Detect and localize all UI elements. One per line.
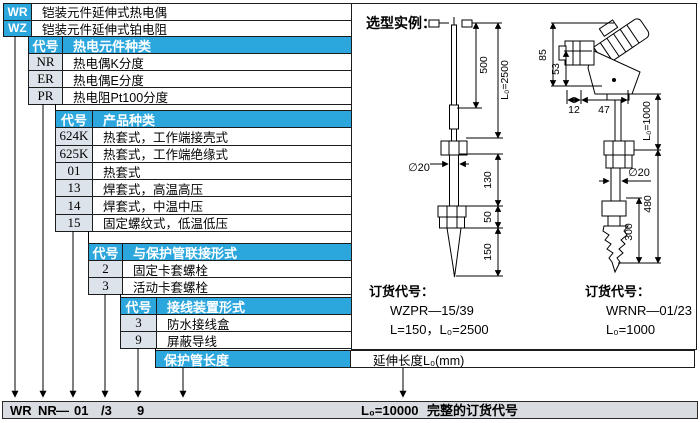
table-row: WR 铠装元件延伸式热电偶 [4, 4, 352, 21]
desc-cell: 热电阻Pt100分度 [63, 88, 352, 105]
dim-47: 47 [598, 104, 610, 116]
left-probe-drawing: ∅20 500 L₀=2500 130 50 15 [408, 17, 511, 277]
dim-l0-2500: L₀=2500 [499, 60, 511, 100]
dia-label: ∅20 [628, 167, 650, 179]
table-header-row: 代号 产品种类 [56, 111, 352, 128]
order-code-part: /3 [101, 403, 112, 418]
code-header-cell: 代号 [29, 37, 63, 54]
dim-150: 150 [482, 243, 494, 261]
order-code: WZPR—15/39 [369, 301, 489, 320]
order-code: WRNR—01/23 [585, 301, 692, 320]
table-title-cell: 接线装置形式 [157, 298, 352, 315]
spec-sheet: WR 铠装元件延伸式热电偶 WZ 铠装元件延伸式铂电阻 代号 热电元件种类 NR… [0, 0, 700, 423]
dia-label: ∅20 [408, 162, 430, 174]
code-header-cell: 代号 [56, 111, 93, 128]
table-title-cell: 与保护管联接形式 [123, 244, 352, 261]
product-type-table: 代号 产品种类 624K 热套式，工作端接壳式 625K 热套式，工作端绝缘式 … [55, 110, 352, 232]
code-cell: 624K [56, 128, 93, 145]
root-code-table: WR 铠装元件延伸式热电偶 WZ 铠装元件延伸式铂电阻 [3, 3, 352, 37]
order-params: L=150，L₀=2500 [369, 320, 489, 339]
desc-cell: 热套式 [93, 163, 352, 180]
code-cell: 13 [56, 180, 93, 197]
table-row: 15 固定螺纹式，低温低压 [56, 215, 352, 232]
extension-length-cell: 延伸长度L₀(mm) [351, 350, 695, 368]
code-cell: 625K [56, 146, 93, 163]
dim-500: 500 [478, 56, 490, 74]
code-cell: 14 [56, 197, 93, 214]
table-row: 3 活动卡套螺栓 [89, 278, 352, 295]
desc-cell: 活动卡套螺栓 [123, 278, 352, 295]
code-cell: 3 [121, 315, 157, 332]
table-row: 3 防水接线盒 [121, 315, 352, 332]
example-panel: 选型实例： [351, 3, 697, 350]
order-label: 订货代号： [585, 282, 692, 301]
right-probe-drawing: 85 53 12 47 ∅20 L₀=1000 [537, 7, 661, 272]
dim-l0-1000: L₀=1000 [641, 101, 653, 141]
order-code-part: — [56, 403, 69, 418]
order-code-bar: WR NR — 01 /3 9 L₀=10000 完整的订货代号 [2, 401, 698, 419]
code-cell: 3 [89, 278, 123, 295]
table-row: PR 热电阻Pt100分度 [29, 88, 352, 105]
table-row: WZ 铠装元件延伸式铂电阻 [4, 21, 352, 38]
table-row: 14 焊套式，中温中压 [56, 197, 352, 214]
terminal-device-table: 代号 接线装置形式 3 防水接线盒 9 屏蔽导线 [120, 297, 352, 349]
desc-cell: 热电偶E分度 [63, 71, 352, 88]
code-cell: PR [29, 88, 63, 105]
dim-480: 480 [642, 195, 654, 213]
code-cell: WR [4, 4, 32, 21]
dim-12: 12 [568, 104, 580, 116]
extension-length-value: L₀=10000 [361, 403, 419, 418]
dim-130: 130 [482, 171, 494, 189]
table-row: 624K 热套式，工作端接壳式 [56, 128, 352, 145]
dim-85: 85 [537, 49, 549, 61]
tube-connection-table: 代号 与保护管联接形式 2 固定卡套螺栓 3 活动卡套螺栓 [88, 243, 352, 295]
table-row: ER 热电偶E分度 [29, 71, 352, 88]
code-cell: WZ [4, 21, 32, 38]
order-params: L₀=1000 [585, 320, 692, 339]
order-code-part: WR [10, 403, 32, 418]
desc-cell: 焊套式，高温高压 [93, 180, 352, 197]
desc-cell: 铠装元件延伸式热电偶 [32, 4, 352, 21]
table-row: 625K 热套式，工作端绝缘式 [56, 146, 352, 163]
dim-300: 300 [623, 223, 635, 241]
code-cell: 01 [56, 163, 93, 180]
table-title-cell: 产品种类 [93, 111, 352, 128]
order-label: 订货代号： [369, 282, 489, 301]
code-header-cell: 代号 [121, 298, 157, 315]
desc-cell: 屏蔽导线 [157, 332, 352, 349]
desc-cell: 热电偶K分度 [63, 54, 352, 71]
code-header-cell: 代号 [89, 244, 123, 261]
code-cell: 15 [56, 215, 93, 232]
table-row: 01 热套式 [56, 163, 352, 180]
table-row: NR 热电偶K分度 [29, 54, 352, 71]
desc-cell: 铠装元件延伸式铂电阻 [32, 21, 352, 38]
desc-cell: 防水接线盒 [157, 315, 352, 332]
table-title-cell: 热电元件种类 [63, 37, 352, 54]
code-cell: 9 [121, 332, 157, 349]
order-code-part: 01 [74, 403, 88, 418]
desc-cell: 热套式，工作端接壳式 [93, 128, 352, 145]
table-header-row: 代号 与保护管联接形式 [89, 244, 352, 261]
code-cell: 2 [89, 261, 123, 278]
left-order-example: 订货代号： WZPR—15/39 L=150，L₀=2500 [369, 282, 489, 339]
code-cell: NR [29, 54, 63, 71]
table-row: 2 固定卡套螺栓 [89, 261, 352, 278]
length-row: 保护管长度 延伸长度L₀(mm) [155, 350, 695, 368]
complete-order-code-label: 完整的订货代号 [427, 403, 518, 418]
code-cell: ER [29, 71, 63, 88]
table-header-row: 代号 热电元件种类 [29, 37, 352, 54]
desc-cell: 固定螺纹式，低温低压 [93, 215, 352, 232]
protection-tube-length-cell: 保护管长度 [155, 350, 351, 368]
desc-cell: 固定卡套螺栓 [123, 261, 352, 278]
table-row: 9 屏蔽导线 [121, 332, 352, 349]
table-header-row: 代号 接线装置形式 [121, 298, 352, 315]
table-row: 13 焊套式，高温高压 [56, 180, 352, 197]
element-type-table: 代号 热电元件种类 NR 热电偶K分度 ER 热电偶E分度 PR 热电阻Pt10… [28, 36, 352, 105]
desc-cell: 焊套式，中温中压 [93, 197, 352, 214]
dim-50: 50 [482, 211, 494, 223]
order-code-part: NR [38, 403, 57, 418]
dim-53: 53 [550, 63, 562, 75]
order-code-part: 9 [137, 403, 144, 418]
right-order-example: 订货代号： WRNR—01/23 L₀=1000 [585, 282, 692, 339]
desc-cell: 热套式，工作端绝缘式 [93, 146, 352, 163]
